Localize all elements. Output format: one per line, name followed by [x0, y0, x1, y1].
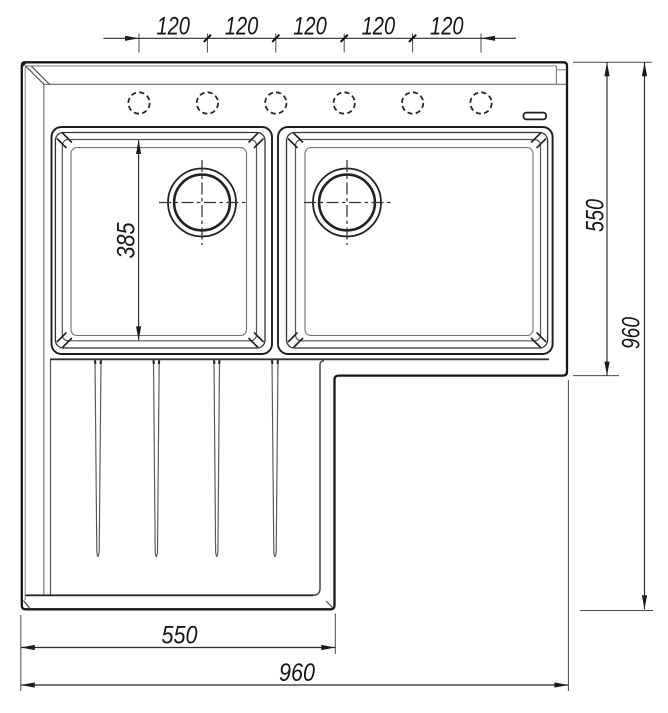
svg-text:120: 120: [362, 13, 396, 41]
svg-text:120: 120: [225, 13, 259, 41]
svg-text:385: 385: [113, 222, 141, 258]
svg-text:960: 960: [618, 317, 646, 349]
svg-text:120: 120: [156, 13, 190, 41]
svg-text:550: 550: [162, 622, 198, 650]
svg-text:960: 960: [279, 659, 315, 687]
svg-text:120: 120: [430, 13, 464, 41]
svg-text:550: 550: [582, 199, 610, 232]
svg-text:120: 120: [293, 13, 327, 41]
